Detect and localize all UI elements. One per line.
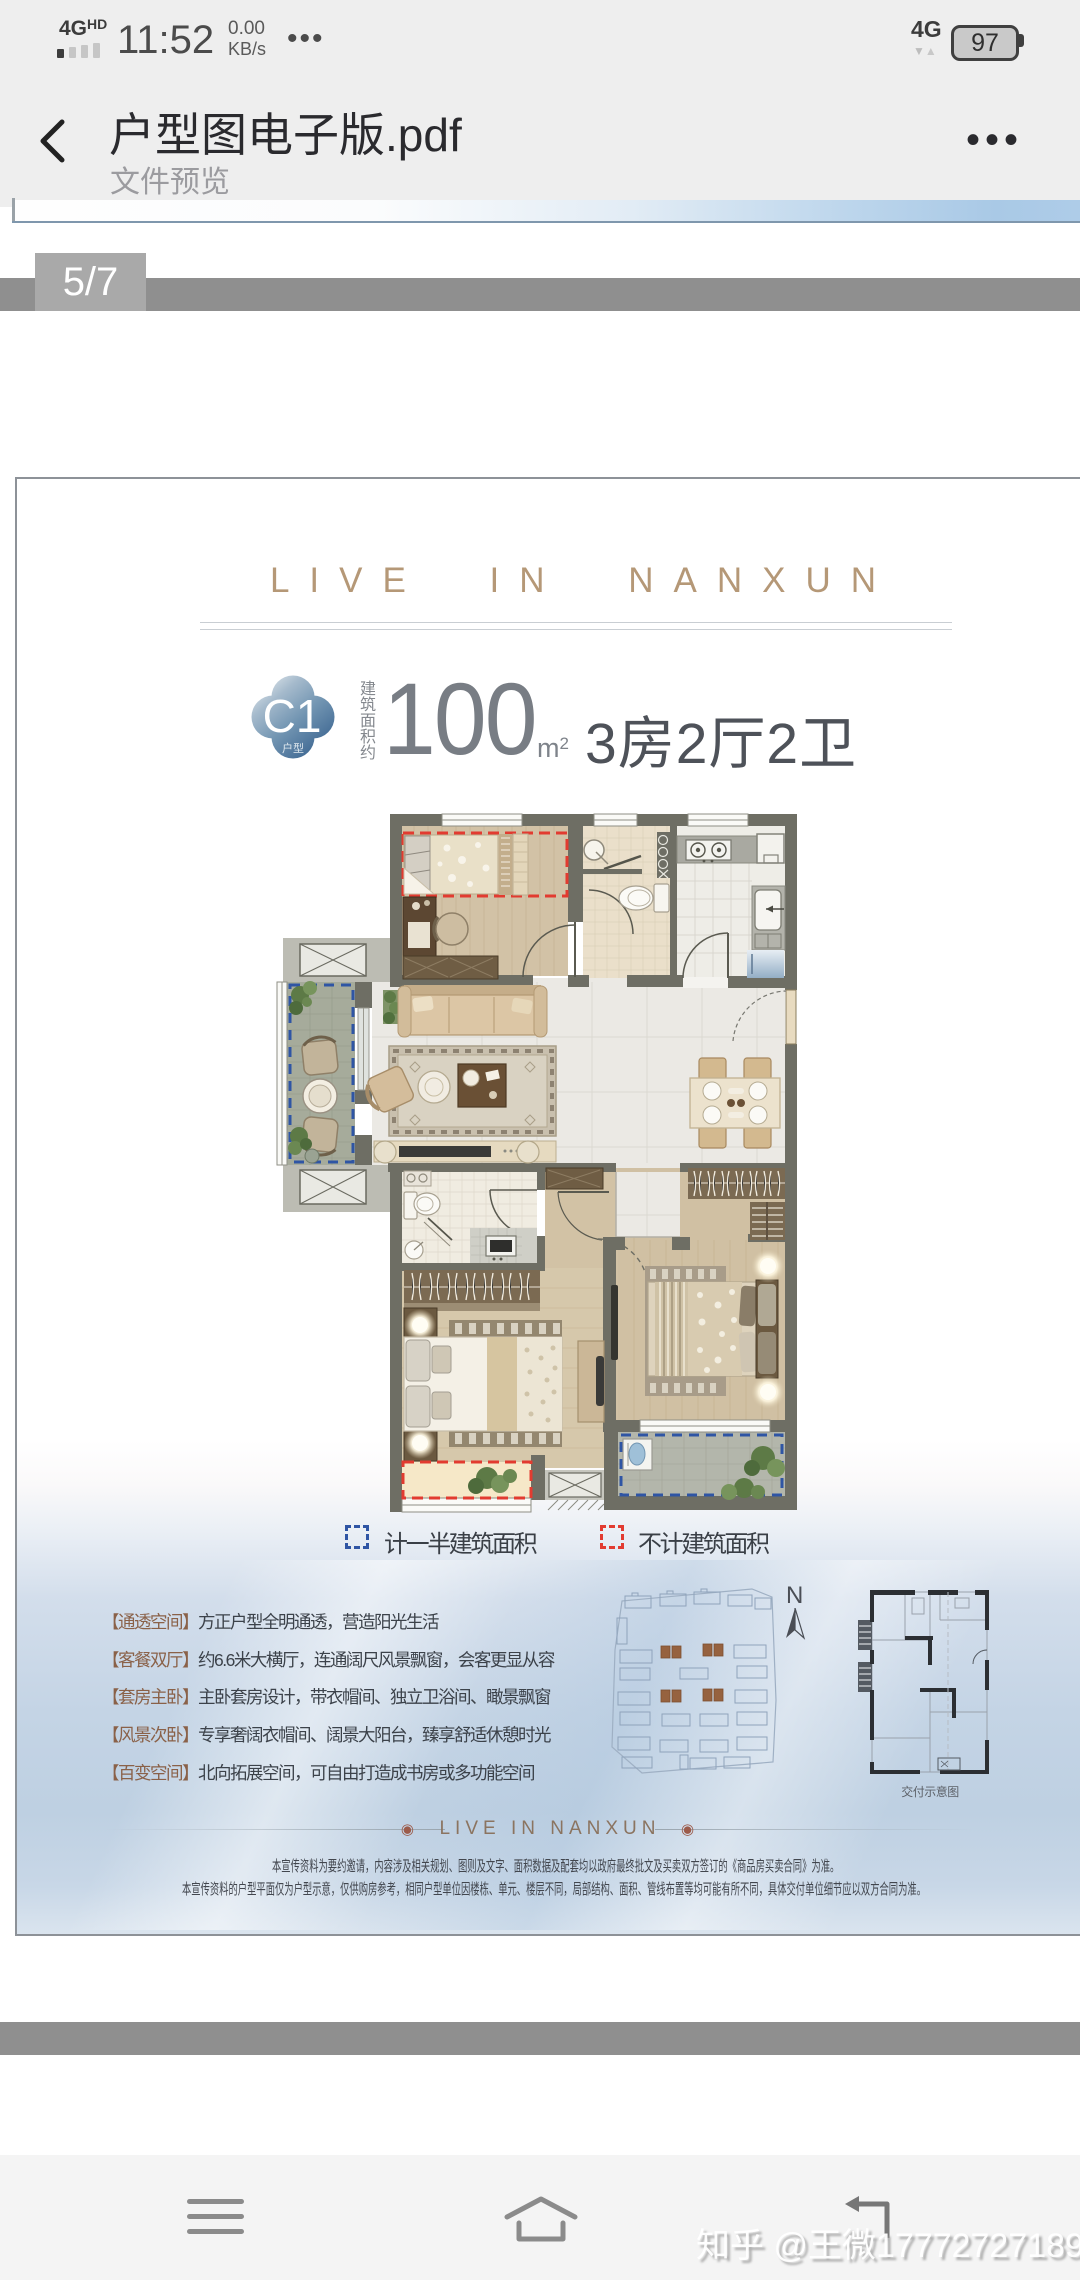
svg-text:C1: C1 bbox=[263, 690, 322, 742]
svg-text:户型: 户型 bbox=[282, 741, 304, 755]
